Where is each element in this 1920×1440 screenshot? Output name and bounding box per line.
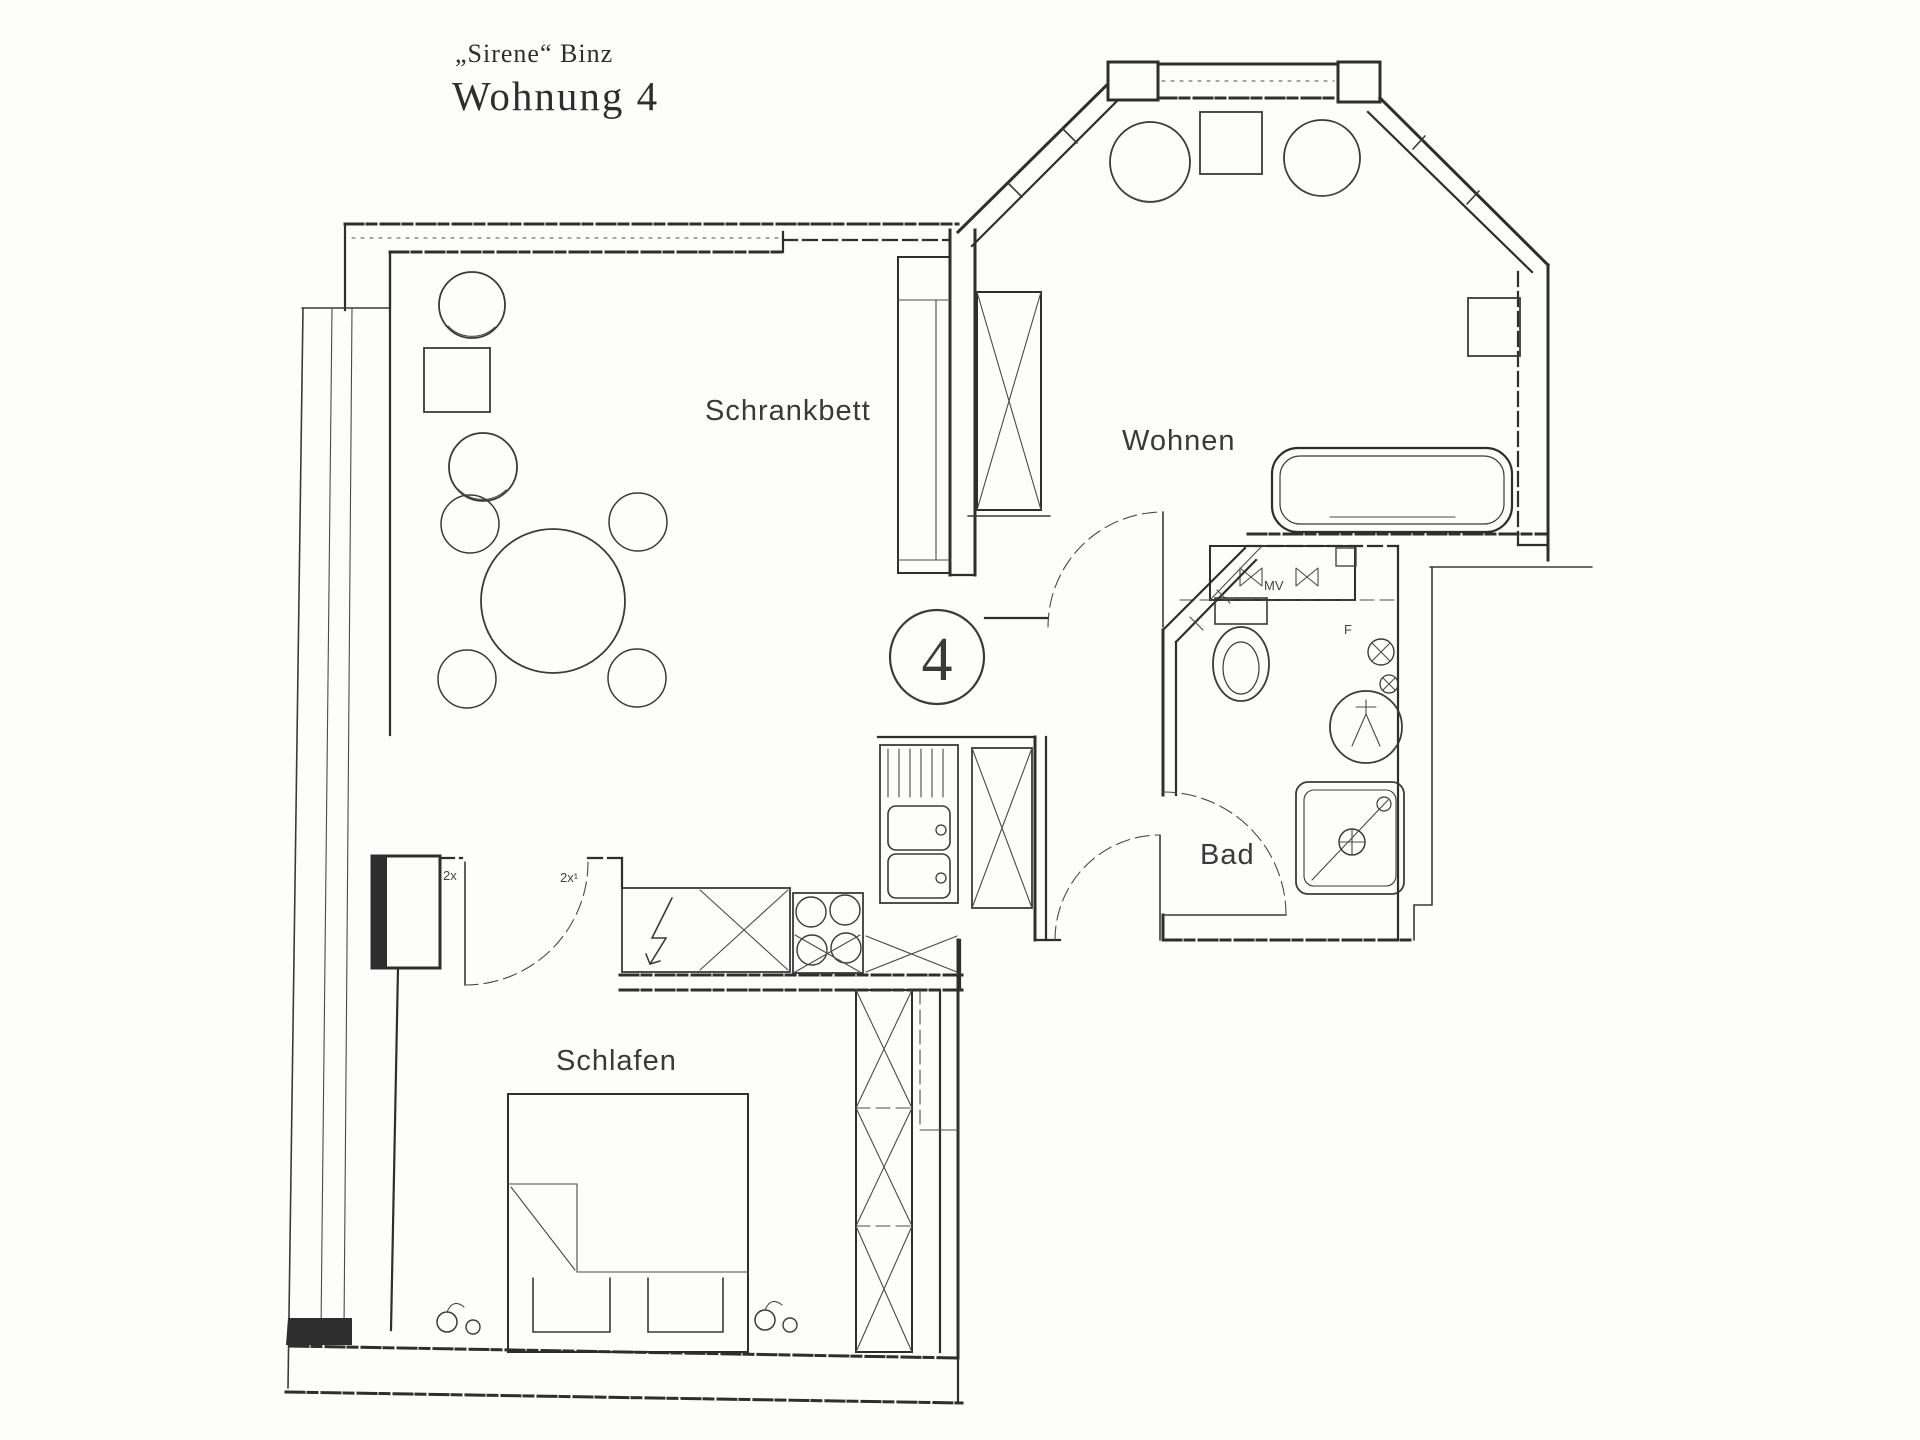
wall-table (1468, 298, 1520, 356)
schrankbett-cabinet (898, 257, 950, 573)
dining-chair (609, 493, 667, 551)
room-label-bad: Bad (1200, 839, 1255, 871)
unit-number-badge: 4 (890, 610, 984, 704)
room-label-schlafen: Schlafen (556, 1045, 677, 1077)
neighbour-boundary (1414, 567, 1592, 940)
pillow (533, 1278, 610, 1332)
plan-title-project: „Sirene“ Binz (455, 39, 613, 68)
entry-door-arc (1055, 835, 1160, 940)
bay-window-walls (958, 62, 1548, 560)
annotation-door-left: 2x (443, 868, 457, 883)
dining-chair (441, 495, 499, 553)
sofa (1272, 448, 1512, 532)
interior-walls (440, 230, 1545, 1358)
wohnen-door-arc (1048, 512, 1163, 627)
living-dining-furniture (424, 257, 950, 708)
side-table (424, 348, 490, 412)
room-label-wohnen: Wohnen (1122, 425, 1236, 457)
wardrobe-column (856, 990, 912, 1352)
floor-plan-sheet: 4 „Sirene“ Binz Wohnung 4 Schrankbett Wo… (0, 0, 1920, 1440)
pillow (648, 1278, 723, 1332)
wohnen-furniture (968, 112, 1520, 532)
room-label-schrankbett: Schrankbett (705, 395, 871, 427)
kitchen-fixtures (622, 745, 1032, 973)
unit-number: 4 (922, 626, 953, 694)
plan-title-unit: Wohnung 4 (452, 73, 659, 119)
annotation-shaft: MV (1264, 578, 1284, 593)
electric-bolt-icon (650, 898, 672, 964)
dining-chair (608, 649, 666, 707)
bay-table (1200, 112, 1262, 174)
toilet-tank (1215, 598, 1267, 624)
toilet-bowl (1213, 627, 1269, 701)
heating-pipes-icon (437, 1303, 480, 1334)
annotation-door-right: 2x¹ (560, 870, 579, 885)
annotation-fuse: F (1344, 622, 1352, 637)
dining-chair (438, 650, 496, 708)
armchair (439, 272, 505, 338)
heating-pipes-icon (755, 1301, 797, 1332)
bed (508, 1094, 748, 1352)
kitchen-counter (622, 888, 790, 972)
dining-table (481, 529, 625, 673)
floor-plan-drawing: 4 „Sirene“ Binz Wohnung 4 Schrankbett Wo… (0, 0, 1920, 1440)
